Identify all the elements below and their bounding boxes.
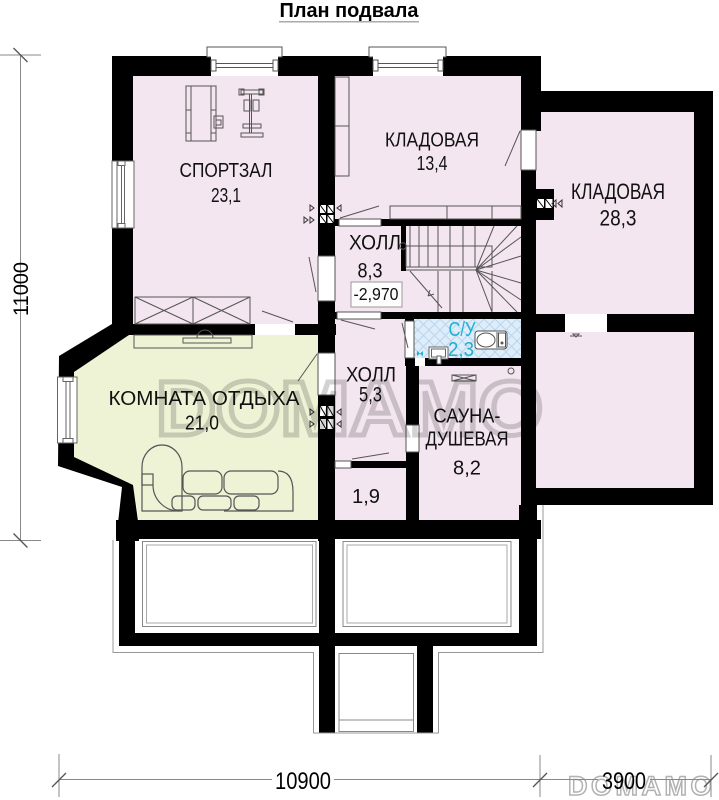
svg-text:2,3: 2,3 (448, 339, 474, 361)
svg-text:11000: 11000 (10, 262, 33, 316)
svg-text:8,2: 8,2 (453, 458, 481, 480)
svg-text:КЛАДОВАЯ: КЛАДОВАЯ (571, 179, 665, 204)
svg-text:DOMAMO: DOMAMO (156, 366, 543, 452)
svg-text:-2,970: -2,970 (354, 284, 399, 304)
svg-text:13,4: 13,4 (417, 153, 448, 175)
svg-text:СПОРТЗАЛ: СПОРТЗАЛ (180, 160, 273, 182)
svg-text:23,1: 23,1 (211, 185, 241, 207)
svg-text:28,3: 28,3 (600, 206, 637, 231)
svg-text:8,3: 8,3 (358, 260, 383, 283)
svg-text:С/У: С/У (449, 319, 476, 341)
svg-text:3900: 3900 (602, 768, 646, 795)
svg-text:10900: 10900 (275, 768, 331, 795)
svg-text:КЛАДОВАЯ: КЛАДОВАЯ (385, 130, 479, 152)
svg-text:План подвала: План подвала (280, 0, 420, 22)
svg-text:1,9: 1,9 (352, 486, 380, 508)
svg-text:ХОЛЛ: ХОЛЛ (349, 232, 401, 255)
